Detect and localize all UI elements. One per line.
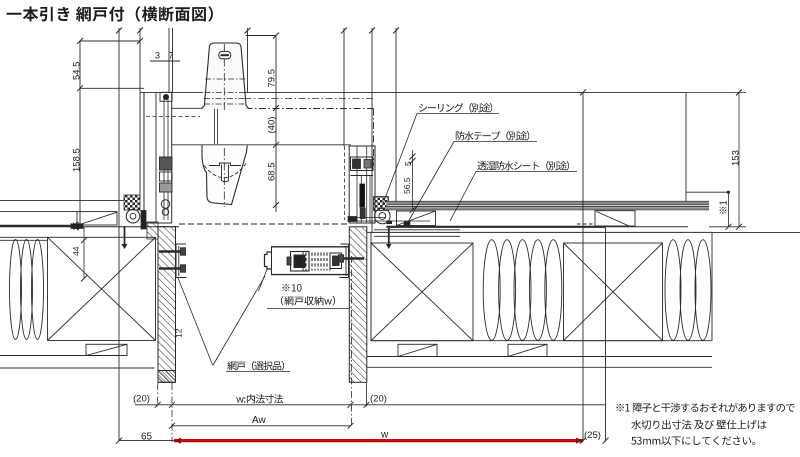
svg-text:(20): (20) xyxy=(133,394,150,405)
svg-text:5: 5 xyxy=(403,161,413,166)
svg-text:7: 7 xyxy=(169,51,174,61)
svg-text:158.5: 158.5 xyxy=(72,148,83,172)
svg-text:79.5: 79.5 xyxy=(267,69,278,88)
svg-text:(40): (40) xyxy=(267,117,278,134)
svg-text:44: 44 xyxy=(71,246,81,256)
svg-text:54.5: 54.5 xyxy=(72,62,83,81)
svg-text:12: 12 xyxy=(174,328,184,338)
svg-text:(25): (25) xyxy=(584,430,601,441)
svg-text:56.5: 56.5 xyxy=(402,177,412,194)
svg-text:w: w xyxy=(380,430,389,441)
svg-text:(20): (20) xyxy=(370,394,387,405)
svg-text:153: 153 xyxy=(731,150,742,166)
svg-text:68.5: 68.5 xyxy=(267,163,278,182)
svg-text:65: 65 xyxy=(141,432,153,443)
svg-text:Aw: Aw xyxy=(252,415,266,426)
svg-text:15: 15 xyxy=(71,221,81,231)
svg-text:3: 3 xyxy=(155,51,160,61)
